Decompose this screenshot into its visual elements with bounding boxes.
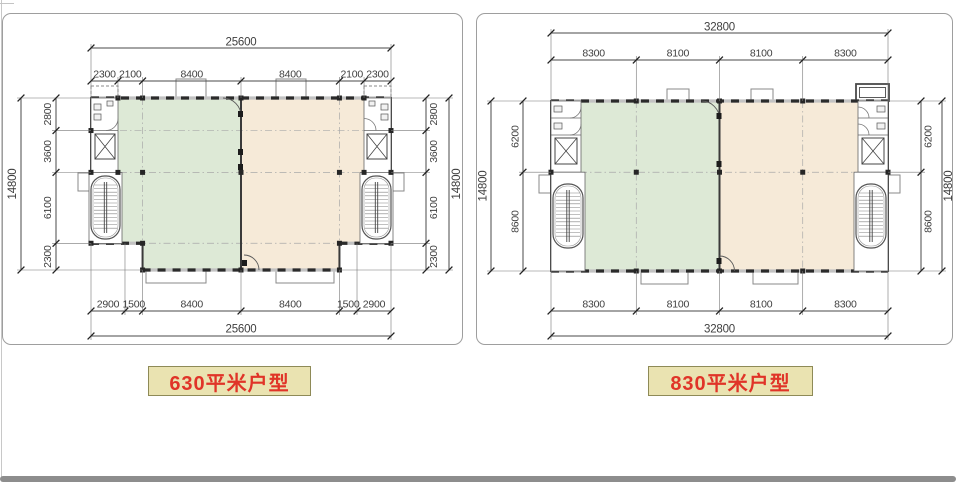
- dim-left-segments: 2800360061002300: [42, 95, 60, 274]
- svg-text:14800: 14800: [7, 169, 19, 200]
- dim-bottom-overall: 32800: [548, 324, 892, 340]
- svg-text:8300: 8300: [834, 298, 857, 310]
- svg-text:2300: 2300: [93, 68, 116, 80]
- floorplan-drawing-630: 2560023002100840084002100230029001500840…: [3, 14, 462, 344]
- svg-text:1500: 1500: [337, 298, 360, 310]
- svg-text:2900: 2900: [363, 298, 386, 310]
- dim-bottom-overall: 25600: [88, 324, 395, 340]
- outer-frame-top-stub: [0, 3, 14, 4]
- svg-text:8300: 8300: [582, 47, 605, 59]
- unit-type-caption-630: 630平米户型: [148, 366, 311, 396]
- svg-text:8400: 8400: [279, 68, 302, 80]
- svg-text:2800: 2800: [42, 103, 54, 126]
- svg-text:6100: 6100: [428, 196, 440, 219]
- dim-right-segments: 2800360061002300: [423, 95, 440, 274]
- svg-text:1500: 1500: [122, 298, 145, 310]
- svg-text:8100: 8100: [750, 298, 773, 310]
- svg-text:8600: 8600: [509, 210, 521, 233]
- floorplan-card-830: 3280083008100810083008300810081008300328…: [476, 13, 953, 345]
- dim-left-segments: 62008600: [509, 98, 526, 275]
- svg-text:8400: 8400: [279, 298, 302, 310]
- svg-text:8100: 8100: [667, 298, 690, 310]
- svg-text:2100: 2100: [340, 68, 363, 80]
- svg-text:25600: 25600: [226, 324, 257, 336]
- floorplan-drawing-830: 3280083008100810083008300810081008300328…: [477, 14, 952, 344]
- page: 2560023002100840084002100230029001500840…: [0, 0, 961, 483]
- svg-text:2100: 2100: [119, 68, 142, 80]
- svg-text:32800: 32800: [704, 324, 735, 336]
- svg-text:14800: 14800: [451, 169, 462, 200]
- unit-type-caption-830: 830平米户型: [648, 366, 813, 396]
- svg-text:2800: 2800: [428, 103, 440, 126]
- svg-text:2300: 2300: [366, 68, 389, 80]
- svg-text:6100: 6100: [42, 196, 54, 219]
- svg-text:8400: 8400: [181, 298, 204, 310]
- svg-text:6200: 6200: [922, 125, 934, 148]
- caption-text-830: 830平米户型: [670, 367, 790, 396]
- svg-text:8400: 8400: [181, 68, 204, 80]
- svg-text:8300: 8300: [834, 47, 857, 59]
- dim-top-overall: 32800: [548, 22, 892, 37]
- svg-text:14800: 14800: [943, 171, 952, 202]
- bottom-divider-bar: [0, 476, 956, 482]
- svg-text:25600: 25600: [226, 37, 257, 49]
- svg-text:3600: 3600: [42, 140, 54, 163]
- svg-text:2300: 2300: [42, 245, 54, 268]
- caption-text-630: 630平米户型: [169, 367, 289, 396]
- dim-left-overall: 14800: [478, 98, 495, 275]
- floorplan-card-630: 2560023002100840084002100230029001500840…: [2, 13, 463, 345]
- svg-text:2900: 2900: [97, 298, 120, 310]
- svg-text:32800: 32800: [704, 22, 735, 34]
- dim-right-overall: 14800: [939, 98, 952, 275]
- svg-text:8100: 8100: [750, 47, 773, 59]
- svg-text:2300: 2300: [428, 245, 440, 268]
- svg-text:8600: 8600: [922, 210, 934, 233]
- svg-text:8300: 8300: [582, 298, 605, 310]
- svg-text:3600: 3600: [428, 140, 440, 163]
- dim-right-segments: 62008600: [918, 98, 935, 275]
- dim-left-overall: 14800: [7, 95, 24, 274]
- dim-right-overall: 14800: [446, 95, 462, 274]
- dim-top-overall: 25600: [88, 37, 395, 52]
- svg-text:8100: 8100: [667, 47, 690, 59]
- svg-text:14800: 14800: [478, 171, 490, 202]
- svg-text:6200: 6200: [509, 125, 521, 148]
